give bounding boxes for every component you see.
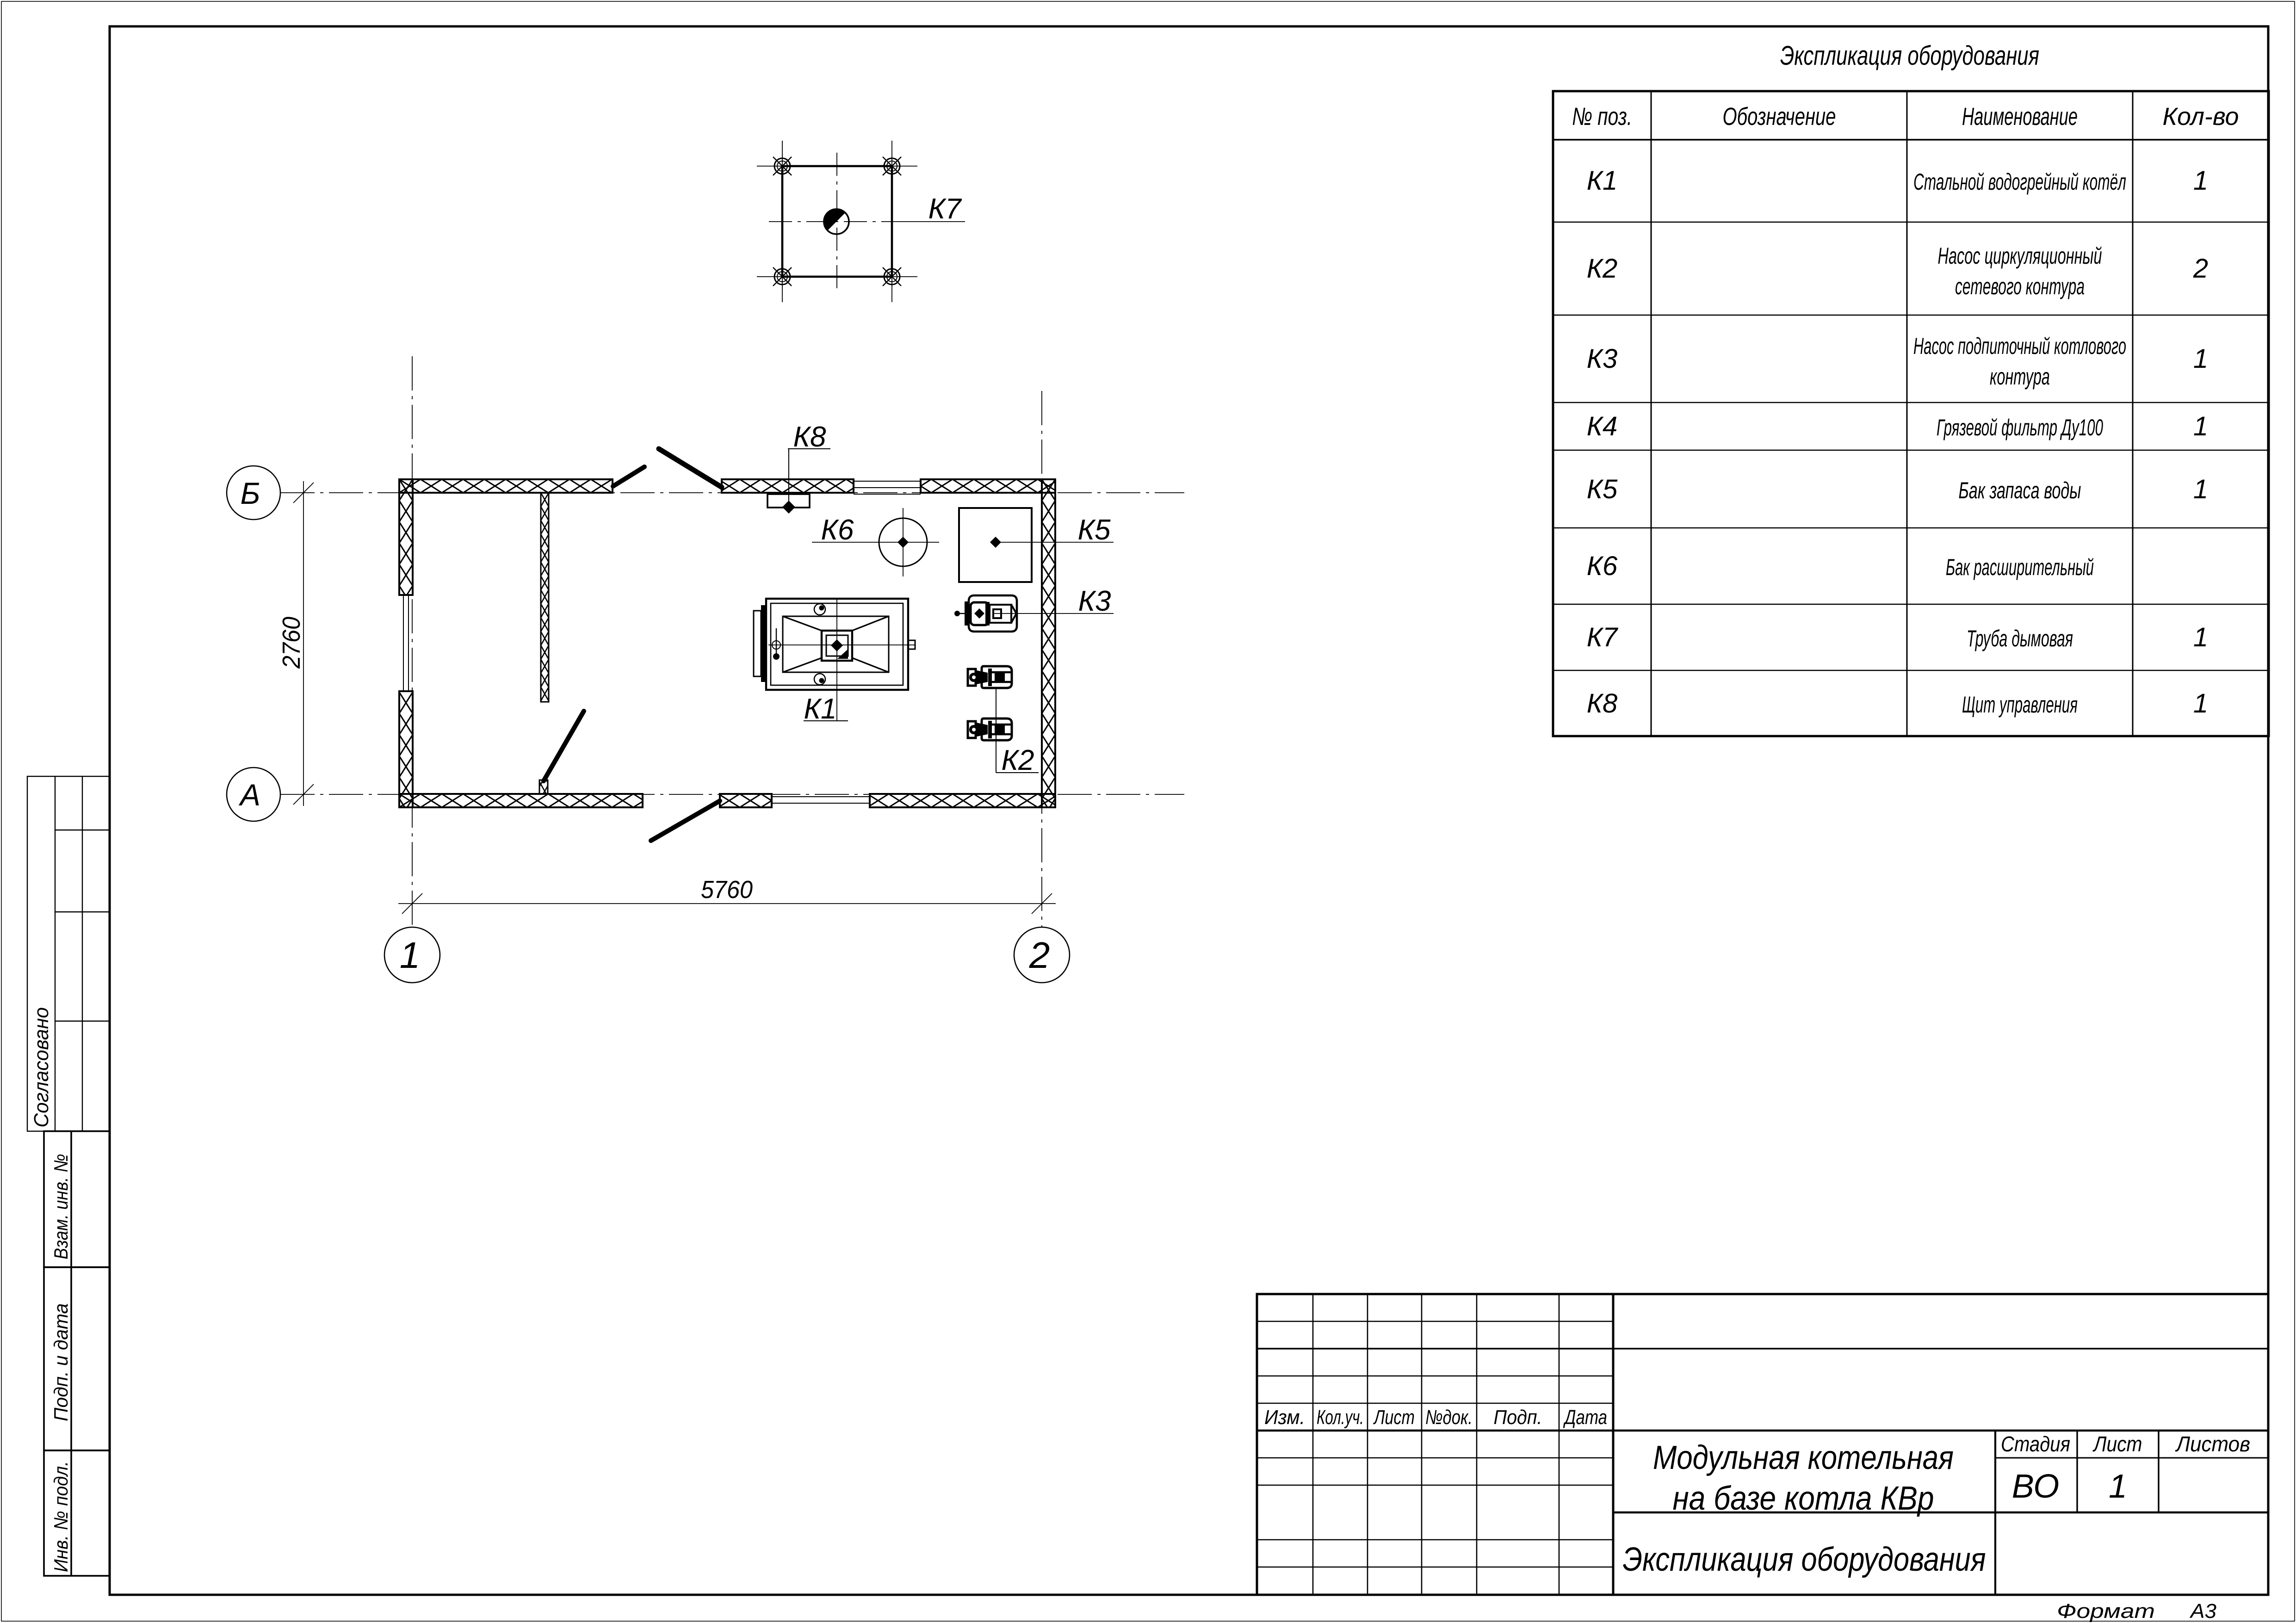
svg-text:1: 1 <box>2193 474 2208 504</box>
svg-text:сетевого контура: сетевого контура <box>1955 273 2085 299</box>
svg-text:2760: 2760 <box>278 617 305 669</box>
svg-text:Труба дымовая: Труба дымовая <box>1967 626 2073 651</box>
svg-text:Дата: Дата <box>1563 1406 1607 1429</box>
svg-text:Бак расширительный: Бак расширительный <box>1946 554 2094 580</box>
svg-text:Экспликация оборудования: Экспликация оборудования <box>1623 1541 1986 1578</box>
svg-text:К6: К6 <box>1587 551 1618 581</box>
svg-text:Лист: Лист <box>2092 1432 2142 1456</box>
svg-text:1: 1 <box>2193 622 2208 652</box>
svg-text:Лист: Лист <box>1373 1406 1415 1429</box>
svg-text:Взам. инв. №: Взам. инв. № <box>50 1154 72 1259</box>
svg-text:1: 1 <box>2109 1468 2127 1505</box>
svg-text:Обозначение: Обозначение <box>1723 103 1836 130</box>
svg-text:К3: К3 <box>1078 585 1111 617</box>
svg-text:контура: контура <box>1990 364 2050 390</box>
svg-text:Щит управления: Щит управления <box>1962 692 2078 718</box>
svg-text:Насос подпиточный котлового: Насос подпиточный котлового <box>1913 333 2126 359</box>
svg-text:1: 1 <box>400 935 421 976</box>
svg-text:Насос циркуляционный: Насос циркуляционный <box>1938 243 2102 269</box>
svg-text:К7: К7 <box>1587 622 1619 652</box>
svg-text:Стадия: Стадия <box>2001 1432 2070 1456</box>
svg-text:Листов: Листов <box>2175 1432 2250 1456</box>
svg-text:Экспликация оборудования: Экспликация оборудования <box>1780 41 2039 71</box>
svg-text:1: 1 <box>2193 166 2208 196</box>
svg-text:К2: К2 <box>1001 744 1034 776</box>
svg-text:1: 1 <box>2193 344 2208 374</box>
svg-text:№ поз.: № поз. <box>1572 103 1632 130</box>
svg-text:Инв. № подл.: Инв. № подл. <box>50 1461 72 1572</box>
svg-text:Модульная котельная: Модульная котельная <box>1653 1439 1954 1476</box>
svg-text:К5: К5 <box>1587 474 1618 504</box>
svg-text:Б: Б <box>241 476 260 510</box>
svg-text:1: 1 <box>2193 411 2208 441</box>
svg-text:К1: К1 <box>1587 166 1617 196</box>
svg-text:Грязевой фильтр Ду100: Грязевой фильтр Ду100 <box>1937 415 2103 440</box>
svg-text:К4: К4 <box>1587 411 1617 441</box>
svg-text:на базе котла КВр: на базе котла КВр <box>1673 1480 1934 1517</box>
svg-text:Изм.: Изм. <box>1264 1406 1305 1429</box>
svg-text:Бак запаса воды: Бак запаса воды <box>1959 477 2081 503</box>
svg-text:К7: К7 <box>928 193 962 225</box>
svg-text:Кол.уч.: Кол.уч. <box>1317 1406 1364 1429</box>
svg-text:Наименование: Наименование <box>1962 103 2078 130</box>
svg-text:5760: 5760 <box>701 876 753 904</box>
svg-text:Подп. и дата: Подп. и дата <box>50 1303 72 1421</box>
svg-text:А3: А3 <box>2189 1600 2217 1623</box>
svg-text:ВО: ВО <box>2012 1468 2059 1505</box>
svg-text:К6: К6 <box>821 514 854 546</box>
svg-text:К1: К1 <box>804 693 836 725</box>
svg-text:К8: К8 <box>793 421 826 453</box>
svg-text:2: 2 <box>1029 935 1050 976</box>
svg-text:Формат: Формат <box>2057 1600 2155 1623</box>
svg-text:№док.: №док. <box>1425 1406 1473 1429</box>
svg-text:К2: К2 <box>1587 254 1617 284</box>
svg-text:1: 1 <box>2193 688 2208 719</box>
svg-text:А: А <box>238 778 260 812</box>
svg-text:Кол-во: Кол-во <box>2163 103 2239 130</box>
svg-text:К8: К8 <box>1587 688 1617 719</box>
svg-text:К5: К5 <box>1077 514 1111 546</box>
svg-text:2: 2 <box>2193 254 2208 284</box>
svg-text:Подп.: Подп. <box>1494 1406 1542 1429</box>
svg-text:Стальной водогрейный котёл: Стальной водогрейный котёл <box>1913 169 2126 195</box>
svg-text:К3: К3 <box>1587 344 1617 374</box>
svg-text:Согласовано: Согласовано <box>30 1007 53 1127</box>
